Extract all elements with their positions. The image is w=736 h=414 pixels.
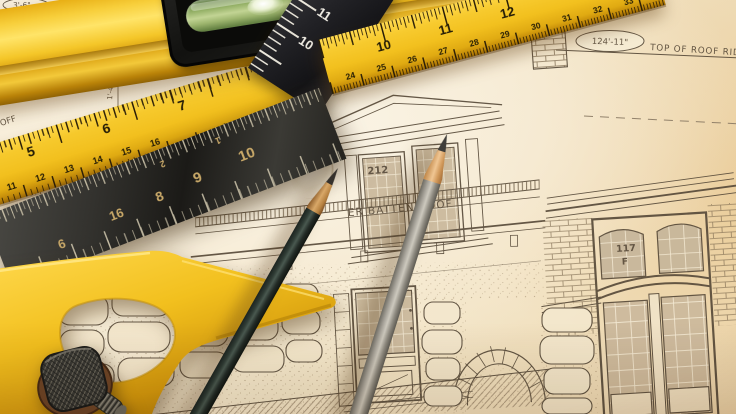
blueprint-photo: 3'-6" TOP ROOM CEILING 1'-4" OFF OM 7'-4… xyxy=(0,0,736,414)
